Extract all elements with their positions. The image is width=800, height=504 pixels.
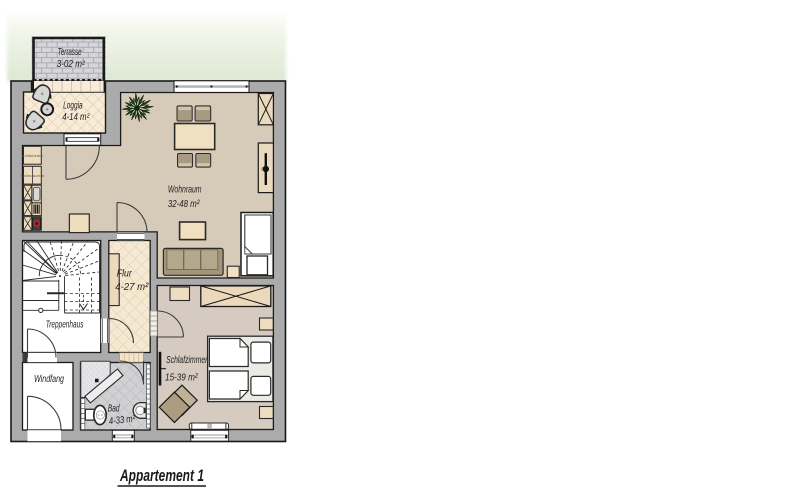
svg-text:4-14 m²: 4-14 m² [62, 112, 90, 123]
svg-text:Wohnraum: Wohnraum [168, 184, 202, 195]
svg-text:Spülmaschine: Spülmaschine [21, 174, 45, 178]
svg-text:Windfang: Windfang [34, 374, 64, 385]
svg-text:Loggia: Loggia [63, 100, 83, 111]
svg-text:4-27 m²: 4-27 m² [115, 282, 149, 293]
svg-text:Terrasse: Terrasse [58, 47, 82, 58]
svg-text:Appartement 1: Appartement 1 [119, 467, 204, 485]
svg-text:Schlafzimmer: Schlafzimmer [166, 355, 208, 366]
svg-text:Bad: Bad [108, 404, 120, 415]
svg-text:Kühlschrank: Kühlschrank [22, 154, 43, 158]
svg-text:32-48 m²: 32-48 m² [168, 199, 200, 210]
svg-text:3-02 m²: 3-02 m² [57, 59, 86, 70]
svg-text:Treppenhaus: Treppenhaus [46, 320, 84, 331]
svg-text:15-39 m²: 15-39 m² [165, 373, 198, 384]
svg-text:Flur: Flur [117, 267, 132, 279]
